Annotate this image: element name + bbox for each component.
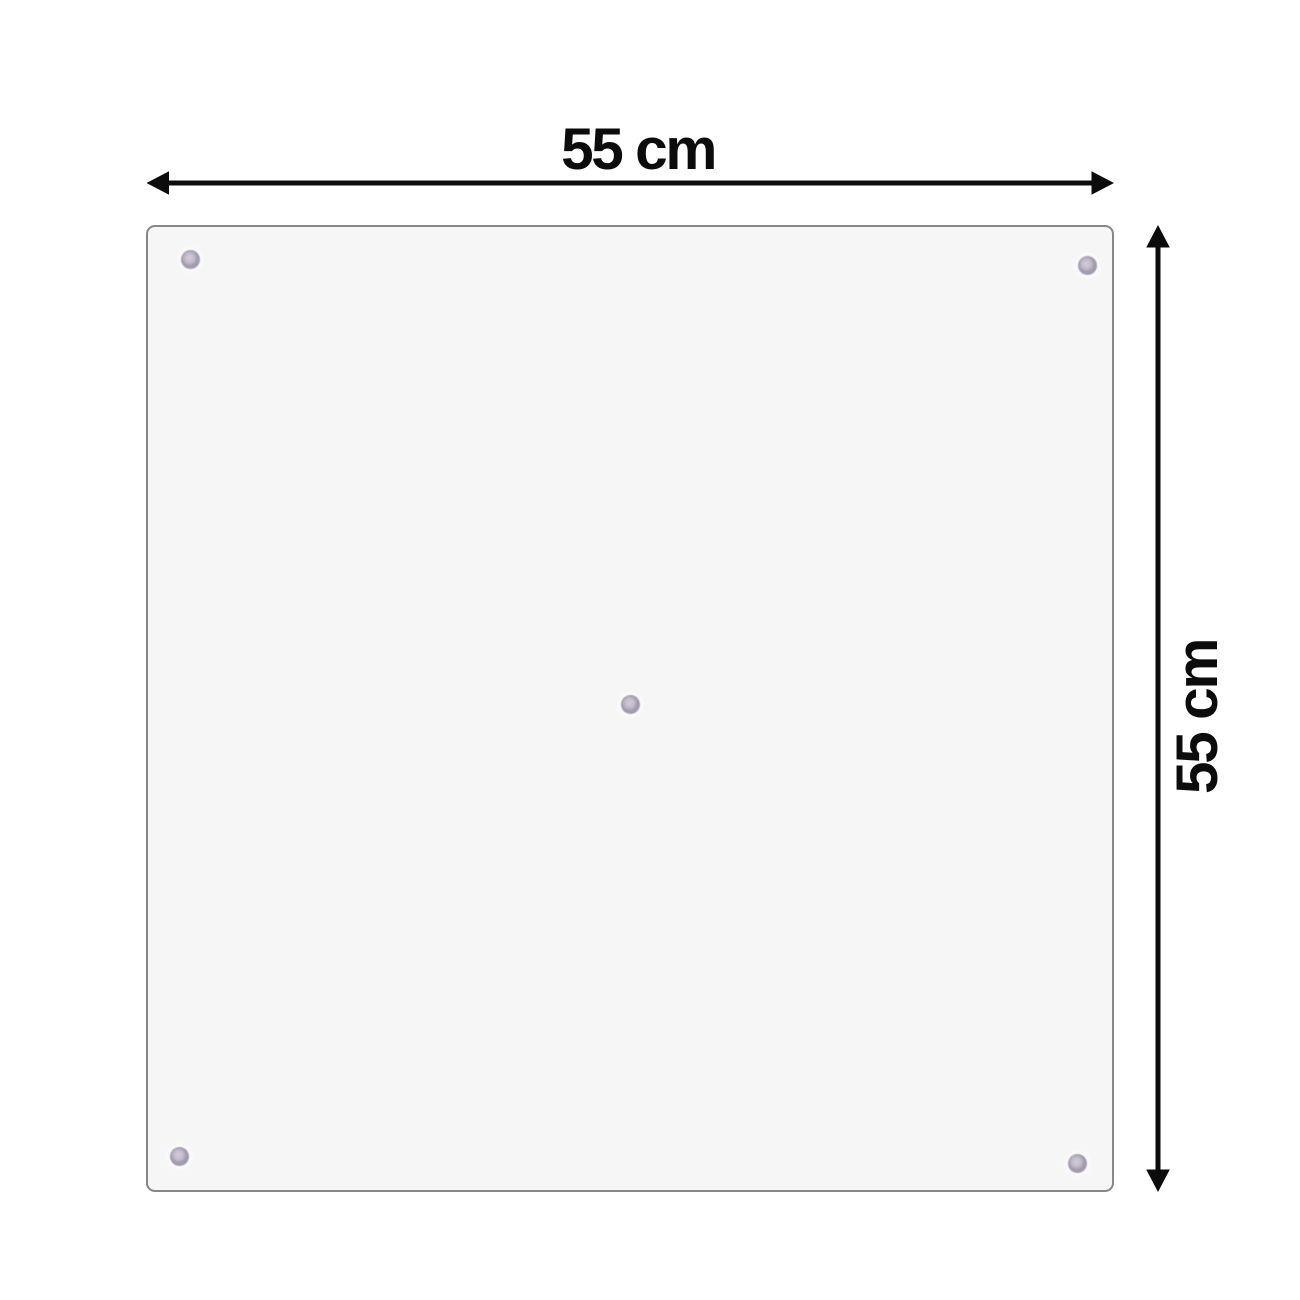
svg-text:55 cm: 55 cm [1165,640,1230,794]
svg-text:55 cm: 55 cm [561,117,715,182]
